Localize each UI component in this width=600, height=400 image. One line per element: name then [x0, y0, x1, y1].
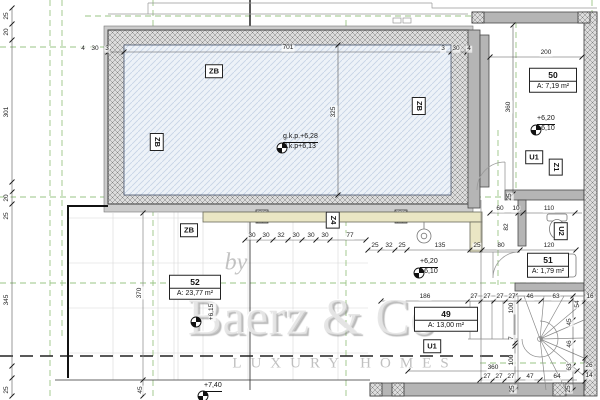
room-number: 49 [415, 308, 477, 320]
level-text: +6,15 [209, 303, 216, 321]
dimension-label: 25 [4, 11, 11, 20]
dimension-label: 27 [506, 374, 515, 381]
dimension-label: 30 [451, 46, 460, 53]
dimension-label: 26 [584, 363, 593, 370]
dimension-label: 30 [261, 233, 270, 240]
dimension-label: 325 [331, 106, 338, 119]
room-number: 50 [530, 69, 576, 81]
dimension-label: 25 [472, 243, 481, 250]
dimension-label: 54 [575, 299, 582, 308]
dimension-label: 30 [90, 46, 99, 53]
room-number: 52 [170, 276, 220, 288]
zone-tag-zb: ZB [412, 97, 426, 115]
dimension-label: 30 [291, 233, 300, 240]
room-label-49: 49A: 13,00 m² [414, 307, 478, 332]
labels-layer: 2520301202534525430370133043252003603030… [0, 0, 600, 400]
dimension-label: 32 [384, 243, 393, 250]
room-area: A: 1,79 m² [528, 265, 568, 276]
dimension-label: 16 [585, 294, 594, 301]
dimension-label: 45 [138, 385, 145, 394]
dimension-label: 301 [4, 106, 11, 119]
zone-tag-z4: Z4 [326, 212, 340, 229]
dimension-label: 25 [566, 384, 573, 393]
dimension-label: 47 [525, 374, 534, 381]
dimension-label: 30 [320, 233, 329, 240]
room-number: 51 [528, 254, 568, 266]
dimension-label: 80 [496, 243, 505, 250]
zone-tag-z1: Z1 [549, 159, 563, 176]
dimension-label: 63 [551, 294, 560, 301]
dimension-label: 360 [487, 365, 500, 372]
room-area: A: 7,19 m² [530, 80, 576, 91]
dimension-label: 186 [419, 294, 432, 301]
room-label-52: 52A: 23,77 m² [169, 275, 221, 300]
dimension-label: 7 [509, 335, 516, 341]
zone-tag-zb: ZB [150, 133, 164, 151]
dimension-label: 110 [543, 206, 555, 213]
dimension-label: 25 [510, 384, 517, 393]
dimension-label: 135 [434, 243, 447, 250]
room-area: A: 13,00 m² [415, 319, 477, 330]
dimension-label: 4 [80, 46, 86, 53]
dimension-label: 27 [495, 294, 504, 301]
dimension-label: 27 [482, 374, 491, 381]
dimension-label: 200 [540, 50, 553, 57]
dimension-label: 25 [507, 192, 514, 201]
dimension-label: 45 [567, 317, 574, 326]
zone-tag-zb: ZB [180, 223, 198, 237]
floorplan-page: by Baerz & Co LUXURY HOMES 2520301202534… [0, 0, 600, 400]
level-text: +7,40 [204, 382, 222, 392]
dimension-label: 120 [543, 243, 556, 250]
dimension-label: 370 [137, 287, 144, 300]
dimension-label: 25 [4, 385, 11, 394]
dimension-label: 46 [525, 294, 534, 301]
dimension-label: 100 [509, 302, 516, 315]
dimension-label: 360 [506, 101, 513, 114]
dimension-label: 3 [104, 46, 110, 53]
dimension-label: 20 [4, 27, 11, 36]
zone-tag-u2: U2 [554, 222, 568, 240]
dimension-label: 4 [466, 46, 472, 53]
dimension-label: 3 [440, 46, 446, 53]
zone-tag-u1: U1 [525, 150, 543, 164]
dimension-label: 27 [482, 294, 491, 301]
dimension-label: 60 [495, 206, 504, 213]
dimension-label: 30 [306, 233, 315, 240]
dimension-label: 25 [397, 243, 406, 250]
dimension-label: 14 [584, 373, 593, 380]
dimension-label: 30 [247, 233, 256, 240]
level-text: +6,20+6,10 [420, 258, 438, 277]
dimension-label: 25 [370, 243, 379, 250]
dimension-label: 32 [276, 233, 285, 240]
dimension-label: 345 [4, 294, 11, 307]
dimension-label: 46 [567, 339, 574, 348]
dimension-label: 77 [345, 233, 354, 240]
dimension-label: 100 [509, 354, 516, 367]
dimension-label: 701 [282, 45, 295, 52]
dimension-label: 20 [4, 193, 11, 202]
room-label-51: 51A: 1,79 m² [527, 253, 569, 278]
zone-tag-u1: U1 [423, 339, 441, 353]
zone-tag-zb: ZB [205, 64, 223, 78]
dimension-label: 63 [567, 362, 574, 371]
dimension-label: 25 [4, 211, 11, 220]
dimension-label: 82 [504, 222, 511, 231]
level-text: g.k.p.+6,28d.k.p+6,13 [283, 133, 318, 152]
dimension-label: 64 [552, 374, 561, 381]
dimension-label: 27 [507, 294, 516, 301]
dimension-label: 10 [511, 206, 520, 213]
room-label-50: 50A: 7,19 m² [529, 68, 577, 93]
room-area: A: 23,77 m² [170, 287, 220, 298]
dimension-label: 27 [469, 294, 478, 301]
level-text: +6,20+6,10 [537, 115, 555, 134]
dimension-label: 27 [494, 374, 503, 381]
